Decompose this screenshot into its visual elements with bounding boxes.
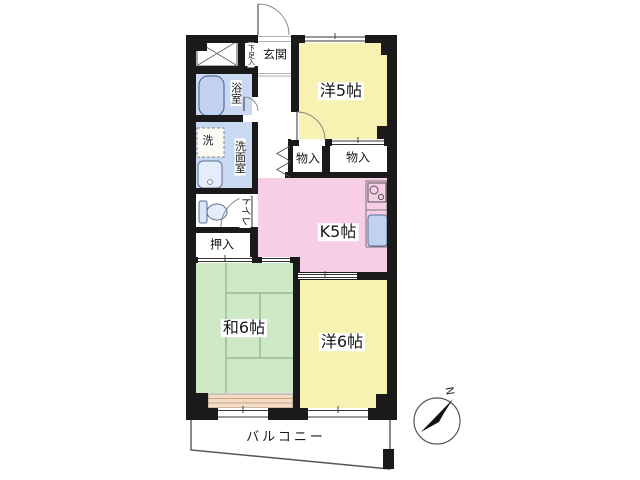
label-bathroom: 浴室 xyxy=(231,80,242,106)
label-western-room-5: 洋5帖 xyxy=(318,82,364,100)
label-laundry: 洗 xyxy=(201,135,216,147)
bathtub-icon xyxy=(199,76,224,116)
label-storage-1: 物入 xyxy=(294,152,322,165)
label-japanese-room-6: 和6帖 xyxy=(221,319,267,337)
label-toilet: トイレ xyxy=(240,194,251,228)
western5-doorway xyxy=(291,112,299,140)
window-bottom-right xyxy=(308,406,368,420)
toilet-doorway xyxy=(252,194,258,227)
futon-closet-sliding-doors xyxy=(198,255,252,263)
label-storage-2: 物入 xyxy=(344,151,372,164)
window-top xyxy=(305,33,365,43)
label-futon-closet: 押入 xyxy=(208,238,236,251)
sink-icon xyxy=(368,215,387,246)
label-entrance: 玄関 xyxy=(261,48,289,61)
kitchen-japanese6-opening xyxy=(262,257,290,263)
label-shoe-cabinet: 下足入 xyxy=(248,43,255,68)
wall-right xyxy=(387,35,397,420)
entrance-door-arc xyxy=(258,4,289,35)
window-bottom-left xyxy=(218,406,268,420)
label-compass-north: N xyxy=(442,384,456,398)
label-washroom: 洗面室 xyxy=(235,139,246,176)
label-balcony: バルコニー xyxy=(244,431,328,445)
entrance-step-line xyxy=(258,74,291,77)
wall-left xyxy=(186,35,196,420)
floor-plan: 玄関 下足入 洋5帖 浴室 洗 洗面室 トイレ 押入 物入 物入 K5帖 和6帖… xyxy=(0,0,640,480)
label-kitchen: K5帖 xyxy=(318,223,359,241)
toilet-icon xyxy=(199,201,227,223)
compass-icon xyxy=(414,398,460,444)
washbasin-drain-icon xyxy=(208,180,213,185)
label-western-room-6: 洋6帖 xyxy=(319,333,365,351)
engawa-strip xyxy=(208,394,293,408)
